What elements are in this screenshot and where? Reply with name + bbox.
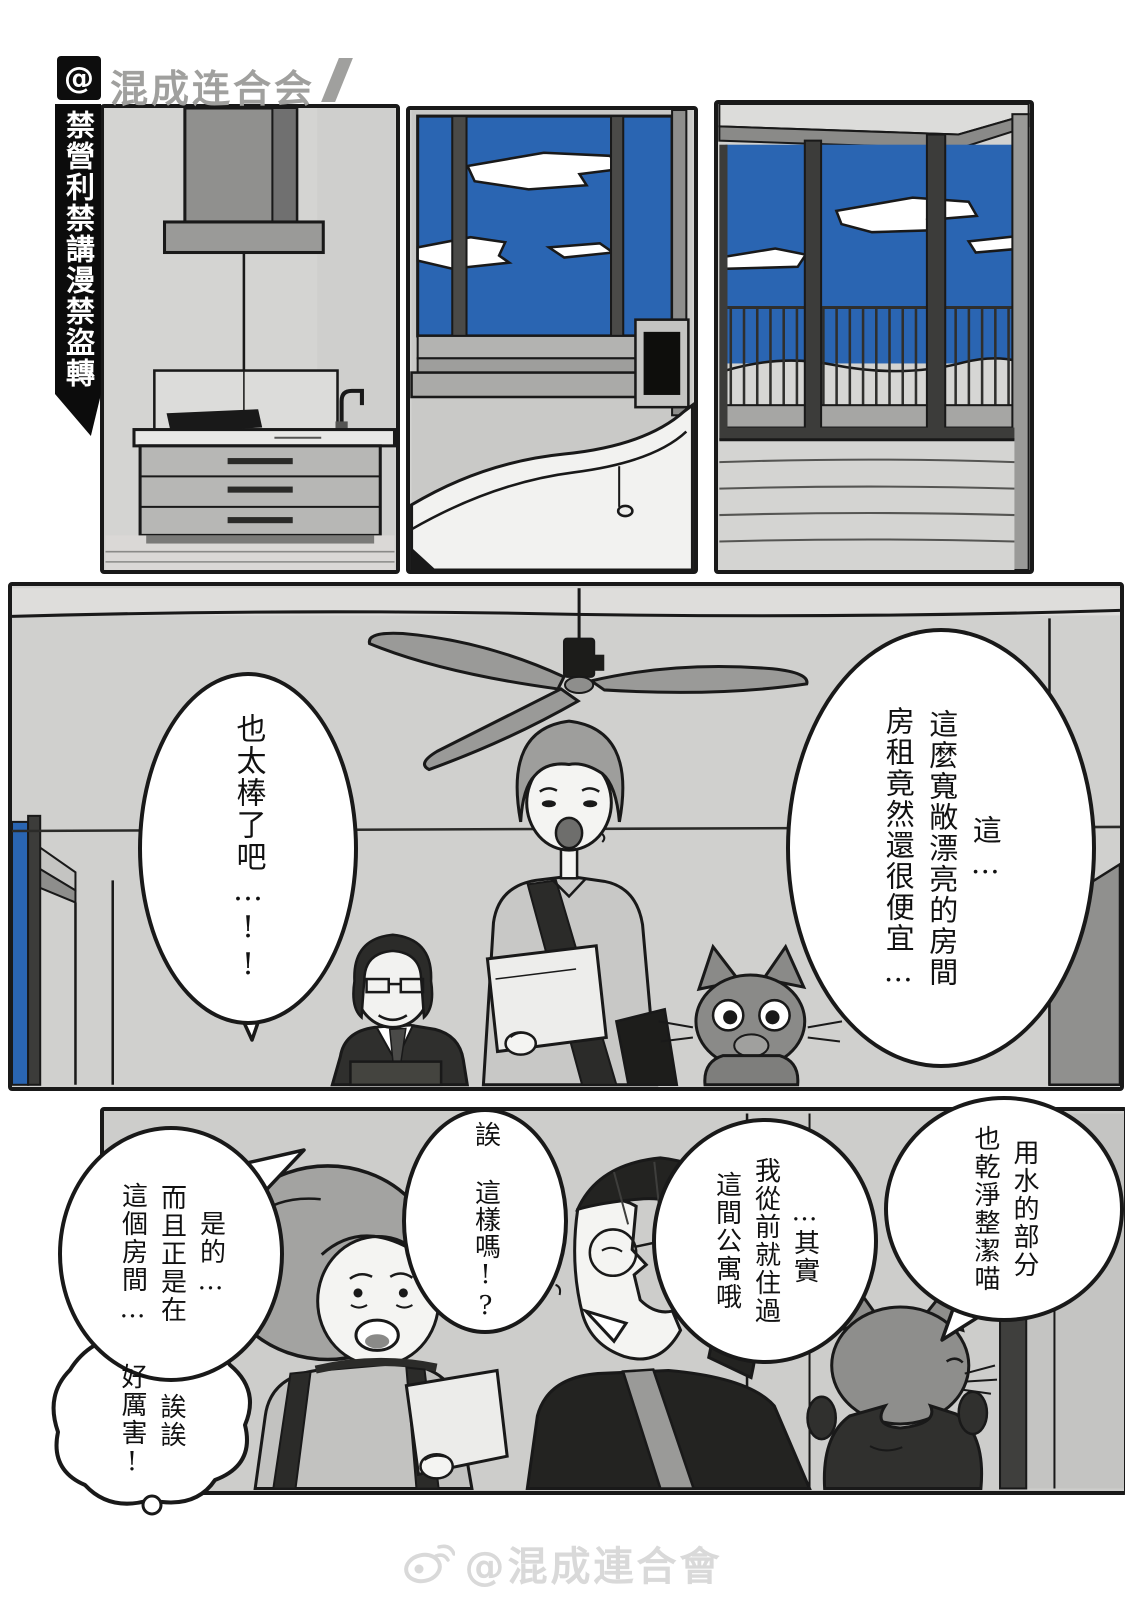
weibo-icon: [403, 1540, 455, 1586]
logo-slash-decoration: [321, 58, 353, 102]
speech-bubble-lived-here: …其實 我從前就住過 這間公寓哦: [652, 1118, 878, 1364]
speech-text-clean-water: 用水的部分 也乾淨整潔喵: [965, 1125, 1043, 1293]
cabinet: [140, 446, 380, 536]
footer-watermark: @混成連合會: [403, 1534, 723, 1592]
panel-balcony: [714, 100, 1034, 574]
window-sky: [418, 116, 672, 336]
speech-bubble-amazing: 也太棒了吧…!!: [138, 672, 358, 1025]
balcony-view: [725, 145, 1022, 428]
kitchen-drawing: [104, 108, 396, 570]
balcony-drawing: [718, 104, 1030, 570]
uploader-logo-text: 混成连合会: [110, 58, 315, 113]
speech-text-lived-here: …其實 我從前就住過 這間公寓哦: [707, 1157, 824, 1325]
prohibition-banner-text: 禁營利禁講漫禁盜轉: [64, 110, 93, 389]
wall-tv: [635, 320, 688, 408]
prohibition-banner-tail: [55, 394, 101, 436]
prohibition-banner: 禁營利禁講漫禁盜轉: [55, 104, 101, 394]
speech-bubble-really: 誒 這樣嗎!?: [402, 1108, 568, 1334]
manga-page: { "header": { "at_badge": "@", "logo_tex…: [0, 0, 1125, 1600]
bathroom-drawing: [410, 110, 694, 570]
speech-bubble-cheap-rent: 這… 這麼寬敞漂亮的房間 房租竟然還很便宜…: [786, 628, 1096, 1068]
thought-text-impressive: 誒誒 好厲害!: [112, 1363, 190, 1479]
panel-bathroom: [406, 106, 698, 574]
panel-kitchen: [100, 104, 400, 574]
speech-text-this-room: 是的… 而且正是在 這個房間…: [113, 1182, 230, 1326]
footer-watermark-text: @混成連合會: [465, 1534, 723, 1592]
wood-floor: [719, 440, 1014, 570]
speech-text-cheap-rent: 這… 這麼寬敞漂亮的房間 房租竟然還很便宜…: [876, 706, 1007, 990]
thought-bubble-impressive: 誒誒 好厲害!: [92, 1362, 210, 1480]
speech-text-really: 誒 這樣嗎!?: [466, 1121, 505, 1322]
speech-bubble-this-room: 是的… 而且正是在 這個房間…: [58, 1126, 284, 1382]
weibo-at-badge: @: [57, 56, 101, 100]
speech-text-amazing: 也太棒了吧…!!: [226, 713, 271, 984]
speech-bubble-clean-water: 用水的部分 也乾淨整潔喵: [884, 1096, 1124, 1322]
